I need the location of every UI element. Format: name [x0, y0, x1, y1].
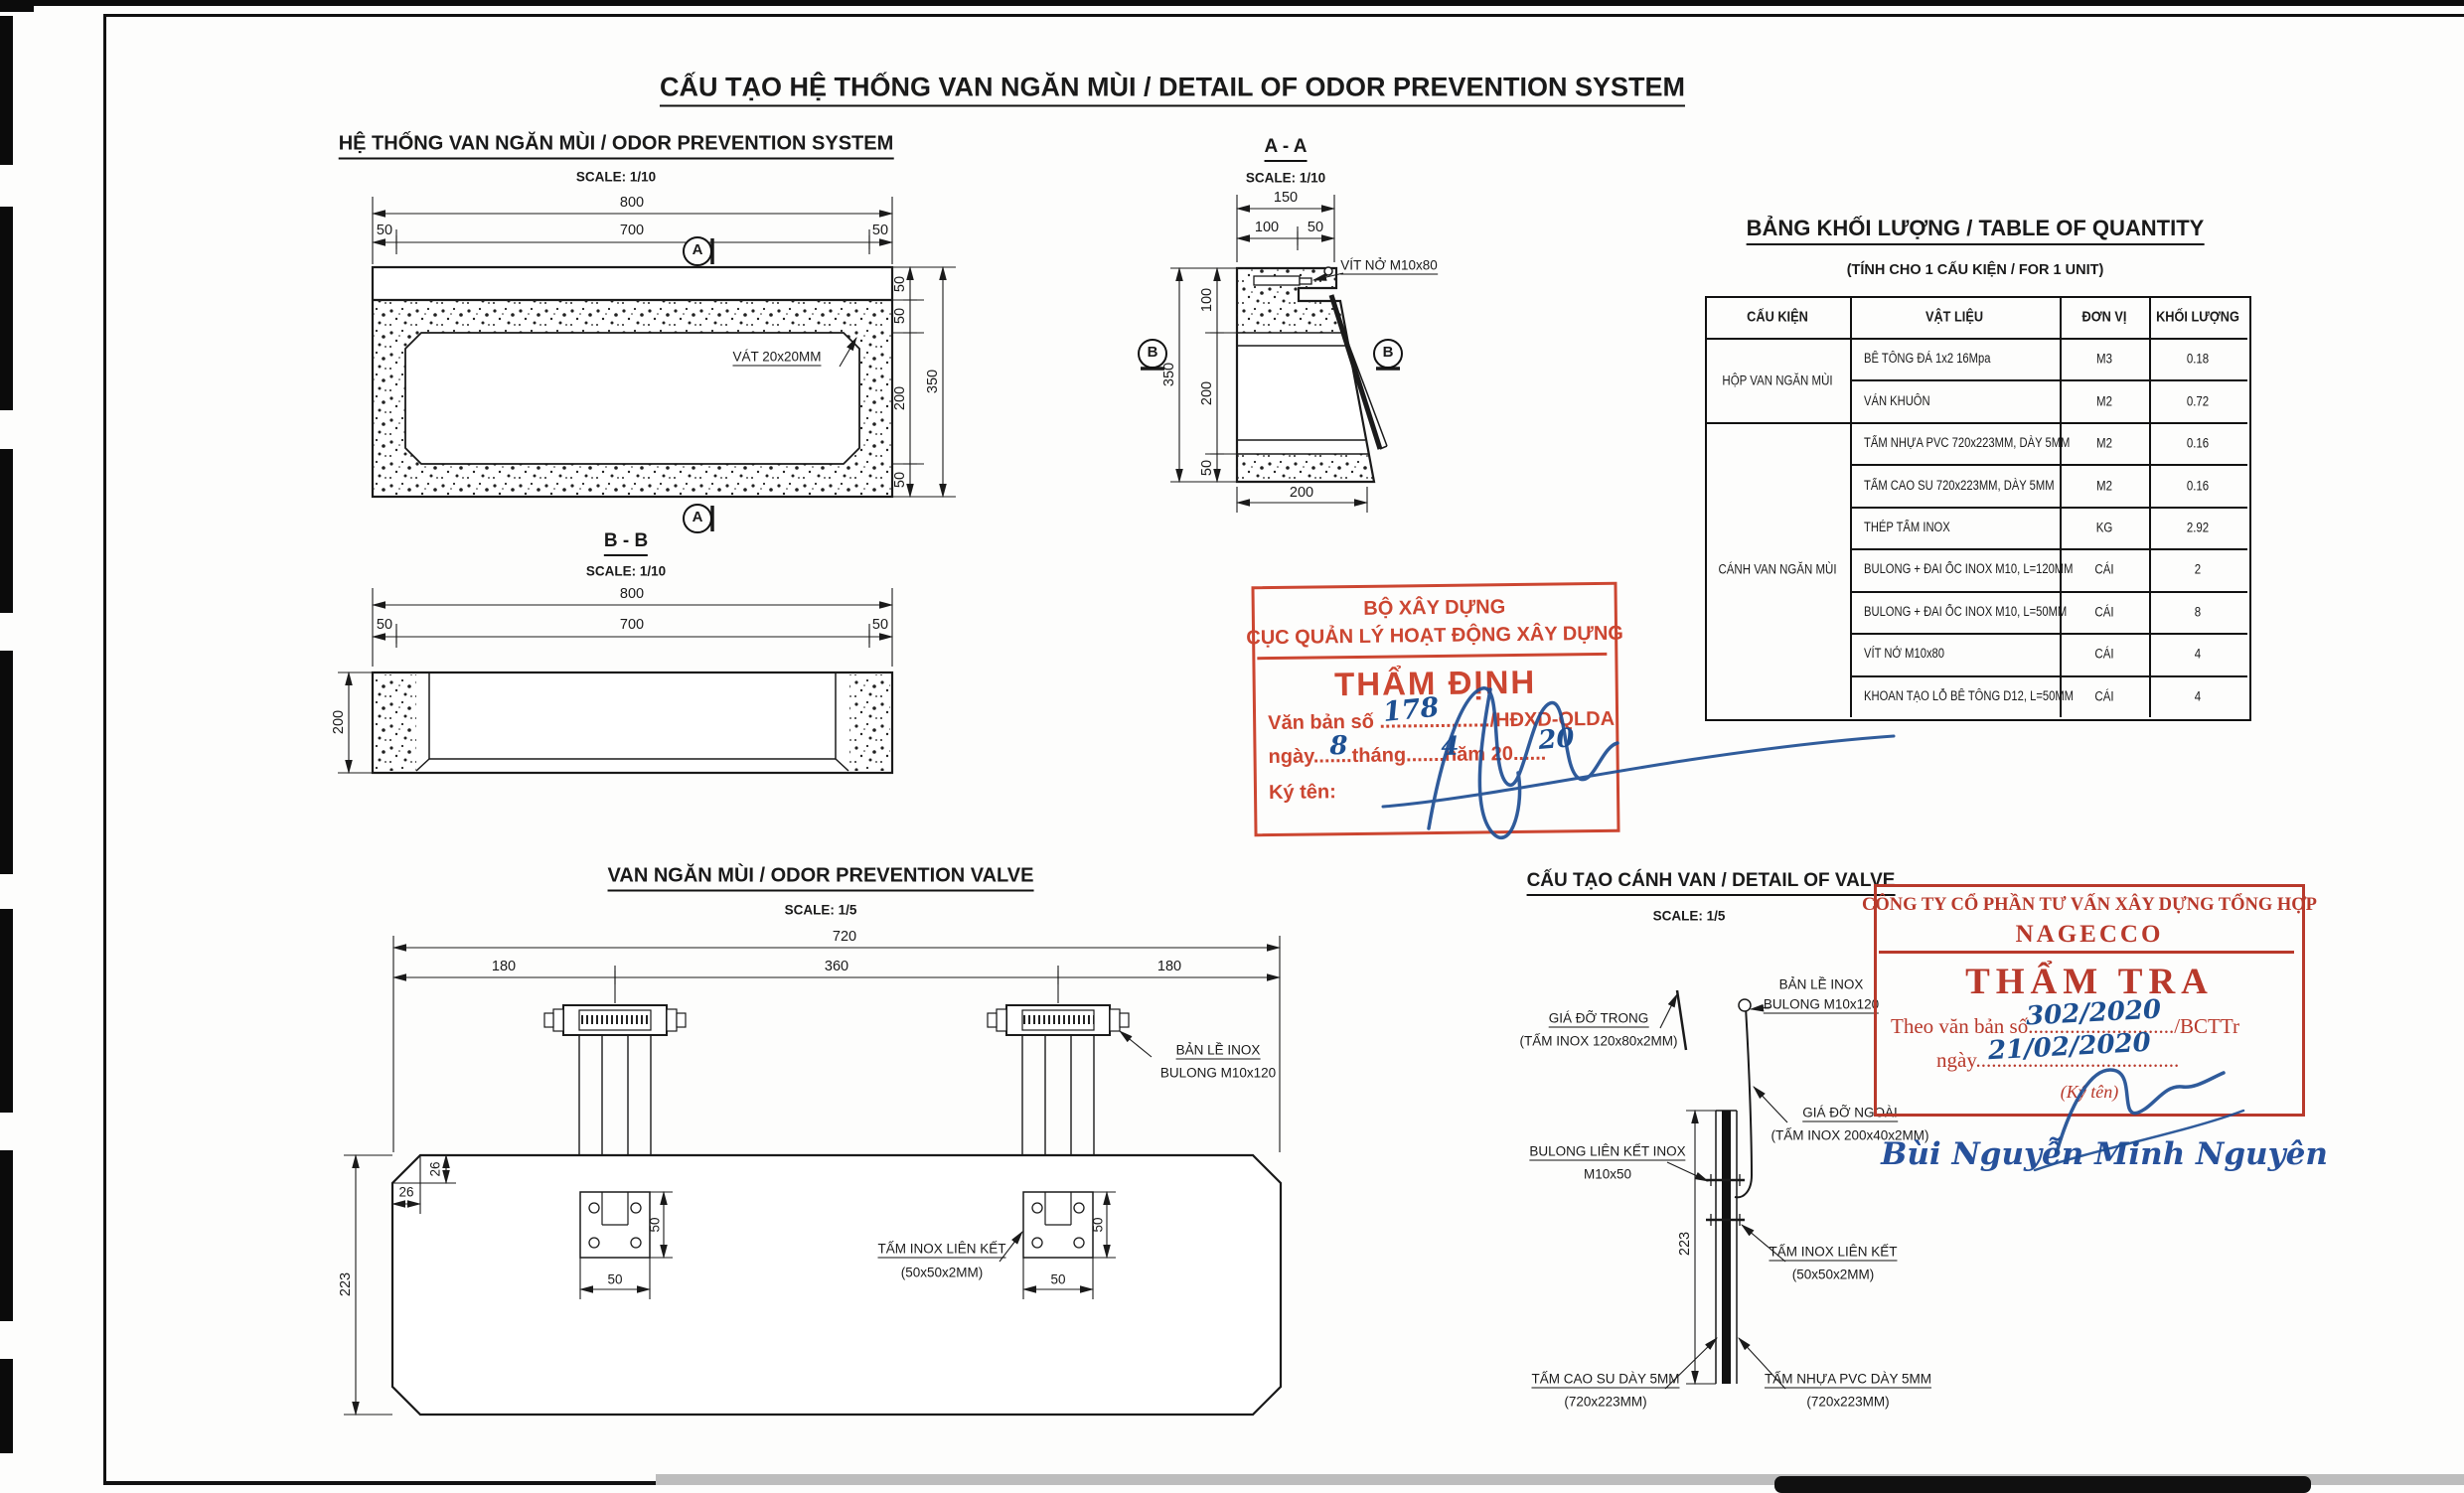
table-subtitle: (TÍNH CHO 1 CẤU KIỆN / FOR 1 UNIT) [1847, 262, 2104, 278]
valve-plan-linework [344, 936, 1281, 1415]
aa-dim-50t: 50 [1308, 220, 1323, 235]
scan-strip-1 [0, 16, 13, 165]
plan-dim-223: 223 [338, 1272, 354, 1296]
table-row-unit: M3 [2096, 352, 2112, 367]
aa-dim-100t: 100 [1255, 220, 1279, 235]
stamp-company: CÔNG TY CỔ PHẦN TƯ VẤN XÂY DỰNG TỔNG HỢP [1862, 895, 2317, 916]
table-row-material: BULONG + ĐAI ỐC INOX M10, L=50MM [1864, 604, 2067, 619]
section-bb-linework [338, 588, 892, 773]
aa-dim-150: 150 [1274, 190, 1298, 206]
det-bolt-label-1: BULONG LIÊN KẾT INOX [1529, 1144, 1685, 1161]
table-row-material: VÍT NỞ M10x80 [1864, 646, 1944, 661]
stamp-date-line: ngày.......tháng.......năm 20...... [1268, 743, 1546, 769]
bb-dim-800: 800 [620, 586, 644, 602]
det-hinge-label-1: BẢN LỀ INOX [1779, 977, 1864, 992]
nagecco-verification-stamp: CÔNG TY CỔ PHẦN TƯ VẤN XÂY DỰNG TỔNG HỢP… [1874, 884, 2305, 1117]
table-row-qty: 0.16 [2187, 479, 2209, 494]
dim-50-right: 50 [872, 223, 888, 238]
table-row-unit: CÁI [2094, 647, 2113, 662]
aa-dim-50l: 50 [1199, 460, 1215, 476]
scan-strip-6 [0, 1150, 13, 1321]
valve-detail-linework [1660, 990, 1787, 1389]
section-bb-title: B - B [604, 530, 648, 556]
aa-dim-200l: 200 [1199, 381, 1215, 405]
plate-r-dim-50v: 50 [1091, 1217, 1106, 1232]
aa-dim-200b: 200 [1290, 485, 1313, 501]
table-header-material: VẬT LIỆU [1925, 309, 1983, 326]
table-row-unit: M2 [2096, 479, 2112, 494]
table-row-material: TẤM CAO SU 720x223MM, DÀY 5MM [1864, 478, 2055, 493]
ministry-approval-stamp: BỘ XÂY DỰNG CỤC QUẢN LÝ HOẠT ĐỘNG XÂY DỰ… [1251, 582, 1619, 836]
table-row-material: VÁN KHUÔN [1864, 393, 1930, 408]
det-plate-label-1: TẤM INOX LIÊN KẾT [1769, 1245, 1897, 1262]
section-marker-b-left: B [1138, 339, 1167, 369]
table-group-2: CÁNH VAN NGĂN MÙI [1718, 562, 1836, 577]
scan-strip-4 [0, 651, 13, 874]
section-aa-title: A - A [1265, 136, 1308, 162]
handwritten-doc-number: 178 [1382, 692, 1441, 728]
dim-50-h2: 50 [892, 308, 908, 324]
stamp-sign-label: Ký tên: [1269, 781, 1336, 805]
table-group-1: HỘP VAN NGĂN MÙI [1722, 373, 1832, 388]
sheet-title: CẤU TẠO HỆ THỐNG VAN NGĂN MÙI / DETAIL O… [660, 73, 1685, 107]
det-hinge-label-2: BULONG M10x120 [1764, 997, 1879, 1014]
table-row-material: THÉP TẤM INOX [1864, 520, 1950, 534]
handwritten-month: 4 [1441, 732, 1459, 762]
table-row-qty: 0.72 [2187, 394, 2209, 409]
table-row-material: KHOAN TẠO LỖ BÊ TÔNG D12, L=50MM [1864, 688, 2074, 703]
plan-dim-720: 720 [833, 929, 856, 945]
bb-dim-50l: 50 [377, 617, 392, 633]
table-row-material: BULONG + ĐAI ỐC INOX M10, L=120MM [1864, 561, 2073, 576]
stamp-org-line2: CỤC QUẢN LÝ HOẠT ĐỘNG XÂY DỰNG [1246, 623, 1623, 651]
dim-800: 800 [620, 195, 644, 211]
plan-dim-360: 360 [825, 959, 848, 974]
signer-name: Bùi Nguyễn Minh Nguyên [1881, 1136, 2328, 1172]
bb-dim-50r: 50 [872, 617, 888, 633]
plate-l-dim-50v: 50 [648, 1217, 663, 1232]
table-row-unit: CÁI [2094, 689, 2113, 704]
system-view-title: HỆ THỐNG VAN NGĂN MÙI / ODOR PREVENTION … [339, 133, 894, 160]
section-bb-scale: SCALE: 1/10 [586, 564, 666, 579]
det-pvc-label-2: (720x223MM) [1806, 1395, 1889, 1410]
frame-left [103, 14, 106, 1484]
stamp-divider [1257, 653, 1607, 660]
aa-bolt-label: VÍT NỞ M10x80 [1340, 258, 1438, 275]
stamp-divider [1879, 951, 2294, 954]
stamp-sign-label: (Ký tên) [2061, 1082, 2118, 1103]
table-row-unit: M2 [2096, 436, 2112, 451]
plan-plate-label-1: TẤM INOX LIÊN KẾT [877, 1242, 1005, 1259]
table-header-component: CẤU KIỆN [1747, 309, 1808, 326]
section-marker-b-right: B [1373, 339, 1403, 369]
table-row-qty: 4 [2195, 647, 2201, 662]
stamp-company-name: NAGECCO [2016, 921, 2164, 949]
stamp-tham-tra: THẨM TRA [1965, 961, 2214, 1003]
table-row-qty: 0.18 [2187, 352, 2209, 367]
scan-strip-3 [0, 449, 13, 613]
system-view-scale: SCALE: 1/10 [576, 170, 656, 185]
handwritten-year: 20 [1537, 723, 1576, 756]
dim-200-h3: 200 [892, 386, 908, 410]
det-pvc-label-1: TẤM NHỰA PVC DÀY 5MM [1765, 1372, 1931, 1389]
det-bolt-label-2: M10x50 [1584, 1167, 1631, 1182]
section-aa-scale: SCALE: 1/10 [1246, 171, 1325, 186]
table-header-unit: ĐƠN VỊ [2082, 309, 2127, 326]
section-aa-linework [1141, 195, 1400, 513]
dim-700: 700 [620, 223, 644, 238]
system-view-linework [373, 197, 956, 531]
dim-50-left: 50 [377, 223, 392, 238]
dim-50-h4: 50 [892, 472, 908, 488]
plate-r-dim-50h: 50 [1050, 1272, 1065, 1287]
plan-hinge-label-2: BULONG M10x120 [1160, 1066, 1276, 1081]
det-plate-label-2: (50x50x2MM) [1792, 1268, 1875, 1282]
table-header-qty: KHỐI LƯỢNG [2156, 309, 2239, 326]
valve-plan-title: VAN NGĂN MÙI / ODOR PREVENTION VALVE [608, 865, 1034, 892]
table-row-qty: 2 [2195, 562, 2201, 577]
plan-dim-180l: 180 [492, 959, 516, 974]
plan-dim-26h: 26 [398, 1185, 413, 1200]
bb-dim-200: 200 [331, 710, 347, 734]
chamfer-label: VÁT 20x20MM [732, 350, 821, 367]
table-title: BẢNG KHỐI LƯỢNG / TABLE OF QUANTITY [1747, 216, 2205, 245]
aa-dim-100l: 100 [1199, 288, 1215, 312]
handwritten-day: 8 [1329, 731, 1347, 761]
valve-plan-scale: SCALE: 1/5 [785, 903, 857, 918]
stamp-org-line1: BỘ XÂY DỰNG [1363, 596, 1505, 621]
det-rubber-label-1: TẤM CAO SU DÀY 5MM [1531, 1372, 1679, 1389]
det-inner-label-2: (TẤM INOX 120x80x2MM) [1519, 1034, 1677, 1049]
valve-detail-title: CẤU TẠO CÁNH VAN / DETAIL OF VALVE [1527, 870, 1896, 896]
table-row-qty: 0.16 [2187, 436, 2209, 451]
plan-dim-26v: 26 [428, 1161, 443, 1176]
valve-detail-scale: SCALE: 1/5 [1653, 909, 1726, 924]
scan-strip-7 [0, 1359, 13, 1453]
table-row-qty: 2.92 [2187, 521, 2209, 535]
table-row-unit: M2 [2096, 394, 2112, 409]
det-inner-label-1: GIÁ ĐỠ TRONG [1549, 1011, 1649, 1028]
section-marker-a-top: A [683, 236, 712, 266]
table-row-qty: 8 [2195, 605, 2201, 620]
bb-dim-700: 700 [620, 617, 644, 633]
table-row-unit: CÁI [2094, 605, 2113, 620]
plate-l-dim-50h: 50 [607, 1272, 622, 1287]
dim-50-h1: 50 [892, 276, 908, 292]
det-rubber-label-2: (720x223MM) [1564, 1395, 1646, 1410]
table-row-unit: CÁI [2094, 562, 2113, 577]
drawing-sheet: CẤU TẠO HỆ THỐNG VAN NGĂN MÙI / DETAIL O… [0, 0, 2464, 1493]
det-dim-223: 223 [1677, 1232, 1693, 1256]
scan-strip-5 [0, 909, 13, 1113]
section-marker-a-bottom: A [683, 504, 712, 533]
plan-dim-180r: 180 [1157, 959, 1181, 974]
table-row-material: TẤM NHỰA PVC 720x223MM, DÀY 5MM [1864, 435, 2070, 450]
dim-350: 350 [925, 370, 941, 393]
table-row-qty: 4 [2195, 689, 2201, 704]
scan-strip-2 [0, 207, 13, 410]
frame-top [103, 14, 2464, 17]
scan-smudge-dark [1774, 1476, 2311, 1493]
scan-edge-corner [0, 0, 34, 12]
scan-edge-top [30, 0, 2464, 6]
table-row-unit: KG [2096, 521, 2113, 535]
plan-hinge-label-1: BẢN LỀ INOX [1176, 1043, 1261, 1060]
table-row-material: BÊ TÔNG ĐÁ 1x2 16Mpa [1864, 351, 1990, 366]
aa-dim-350: 350 [1161, 363, 1177, 386]
plan-plate-label-2: (50x50x2MM) [901, 1266, 984, 1280]
